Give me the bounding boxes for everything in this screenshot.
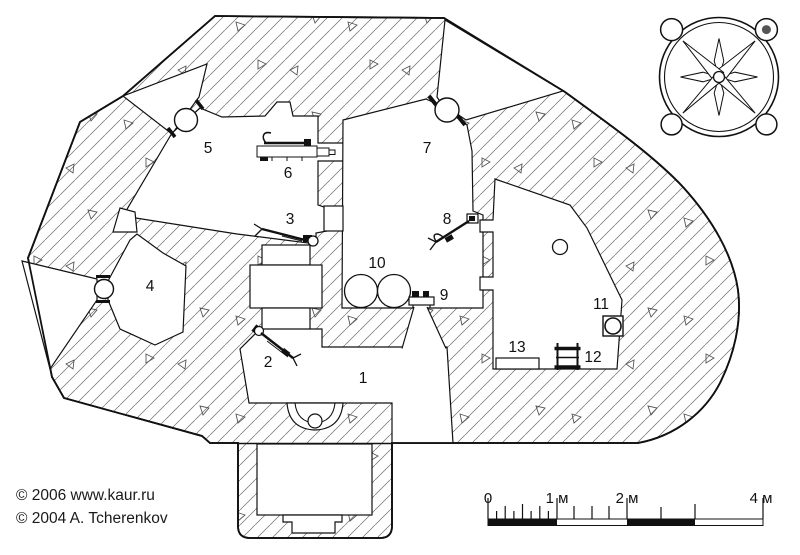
scale-label-1: 1 м — [546, 490, 569, 507]
scale-label-0: 0 — [484, 490, 492, 507]
room-label-13: 13 — [508, 339, 525, 356]
entrance-pit — [257, 444, 372, 515]
room-label-10: 10 — [368, 255, 386, 272]
credit-line-1: © 2006 www.kaur.ru — [16, 484, 168, 507]
niche-lower — [262, 308, 310, 330]
room-label-11: 11 — [593, 296, 609, 313]
room-label-3: 3 — [286, 211, 295, 228]
scale-label-2: 2 м — [616, 490, 639, 507]
scale-label-3: 4 м — [750, 490, 773, 507]
niche-upper — [262, 245, 310, 265]
room-label-6: 6 — [284, 165, 293, 182]
room-label-7: 7 — [423, 140, 432, 157]
room-label-1: 1 — [359, 370, 368, 387]
barrel — [378, 275, 411, 308]
entrance-steps — [283, 515, 342, 533]
room-label-4: 4 — [146, 278, 155, 295]
stove-11 — [603, 316, 623, 336]
compass-rose-icon — [660, 18, 779, 137]
ball-mount-room5 — [175, 109, 198, 132]
room-label-5: 5 — [204, 140, 213, 157]
room-label-2: 2 — [264, 354, 273, 371]
niche-middle — [250, 265, 322, 308]
room-label-12: 12 — [584, 349, 601, 366]
rear-niche-port — [308, 414, 322, 428]
credit-line-2: © 2004 A. Tcherenkov — [16, 507, 168, 530]
floor-plan-drawing: 12345678910111213 — [0, 0, 800, 555]
north-marker-dot — [762, 25, 771, 34]
room-label-8: 8 — [443, 211, 452, 228]
barrel — [345, 275, 378, 308]
platform-13 — [496, 358, 539, 369]
doorway-room5-room7 — [324, 206, 343, 231]
room-label-9: 9 — [440, 287, 449, 304]
compass-corner-se — [756, 114, 777, 135]
credits: © 2006 www.kaur.ru © 2004 A. Tcherenkov — [16, 484, 168, 530]
compass-corner-sw — [661, 114, 682, 135]
compass-corner-nw — [661, 19, 683, 41]
scale-bar: 01 м2 м4 м — [484, 490, 773, 526]
ball-mount-room4 — [95, 280, 114, 299]
ball-mount-room7 — [435, 98, 459, 122]
scale-unit-labels: 01 м2 м4 м — [484, 490, 773, 507]
bunker-plan-page: 12345678910111213 — [0, 0, 800, 555]
